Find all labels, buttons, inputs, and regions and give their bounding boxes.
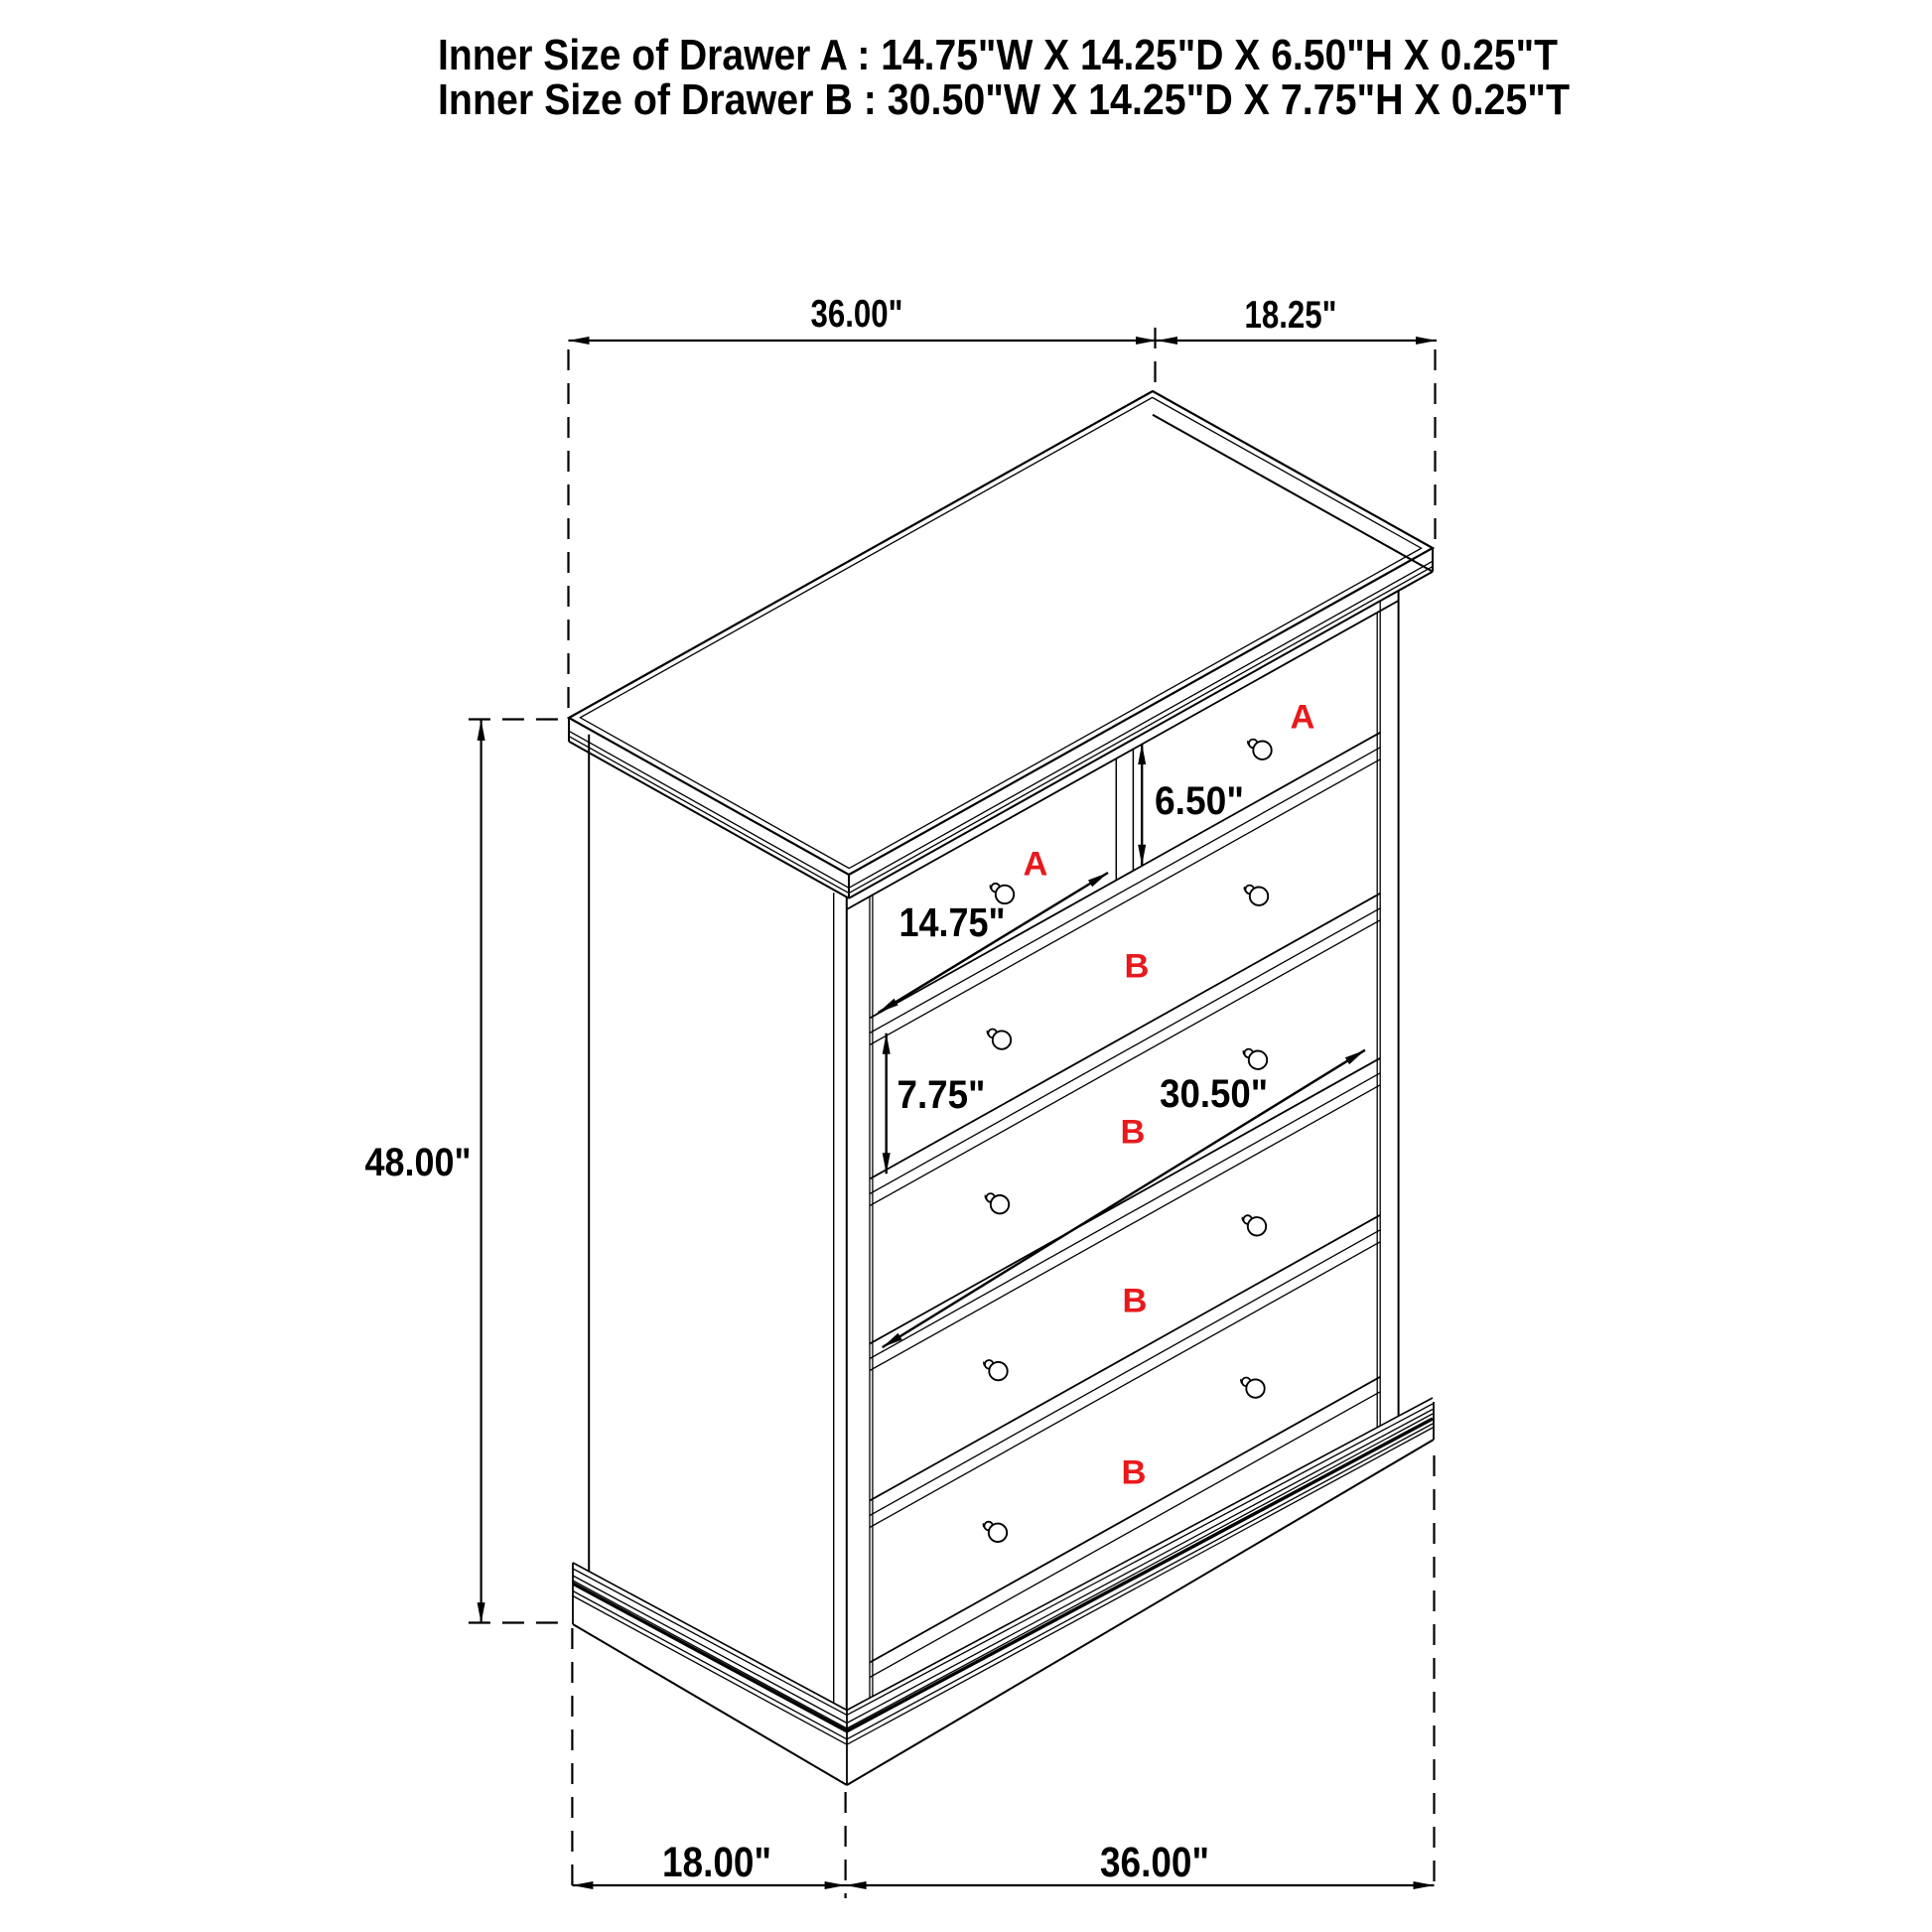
svg-text:30.50": 30.50"	[1160, 1072, 1268, 1116]
svg-text:36.00": 36.00"	[1100, 1839, 1209, 1886]
svg-text:B: B	[1123, 1282, 1148, 1319]
svg-text:18.25": 18.25"	[1245, 294, 1337, 337]
svg-text:7.75": 7.75"	[897, 1073, 986, 1117]
svg-text:A: A	[1024, 845, 1048, 883]
svg-text:6.50": 6.50"	[1155, 779, 1244, 823]
svg-text:B: B	[1125, 947, 1150, 985]
svg-text:B: B	[1121, 1113, 1146, 1151]
svg-text:36.00": 36.00"	[811, 293, 903, 336]
svg-text:14.75": 14.75"	[899, 899, 1006, 945]
svg-text:18.00": 18.00"	[662, 1839, 771, 1886]
svg-text:Inner Size of Drawer A : 14.75: Inner Size of Drawer A : 14.75"W X 14.25…	[438, 31, 1558, 79]
svg-text:48.00": 48.00"	[365, 1141, 472, 1184]
svg-text:B: B	[1122, 1453, 1147, 1491]
svg-text:A: A	[1291, 699, 1315, 737]
svg-text:Inner Size of Drawer B : 30.50: Inner Size of Drawer B : 30.50"W X 14.25…	[438, 75, 1570, 124]
